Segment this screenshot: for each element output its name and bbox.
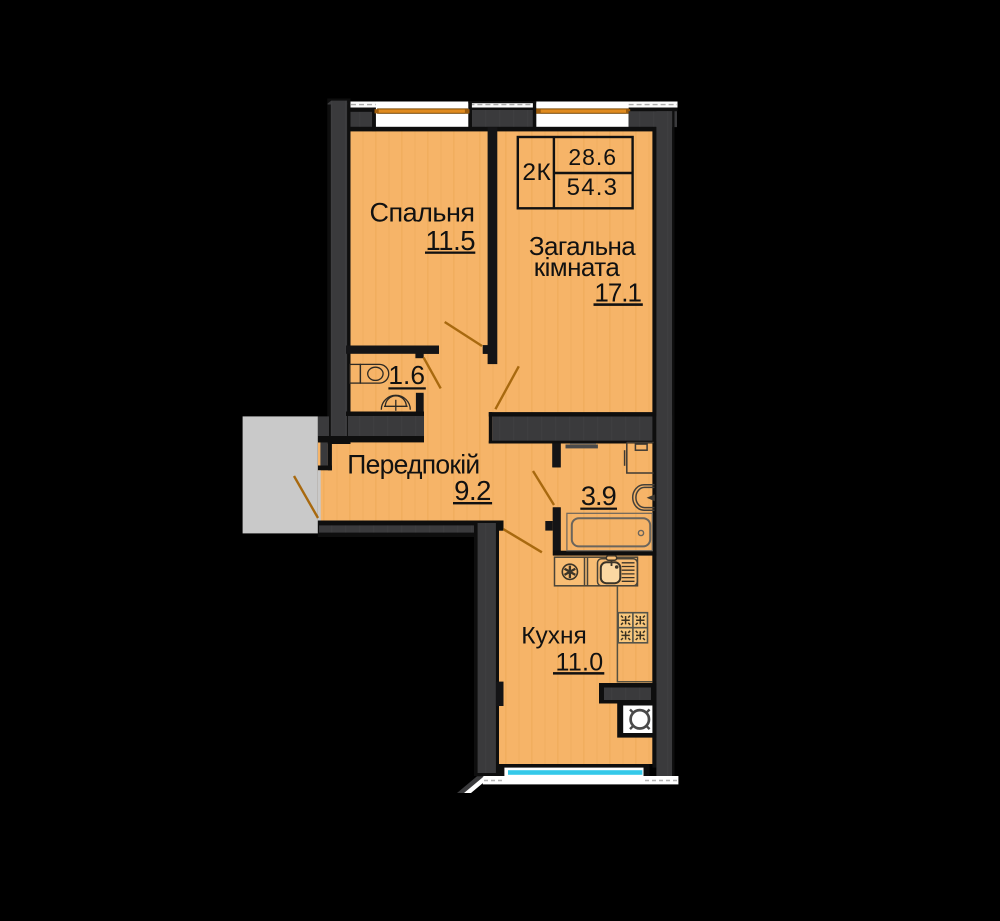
svg-text:2К: 2К: [522, 159, 551, 186]
svg-text:Кухня: Кухня: [521, 623, 587, 650]
svg-text:3.9: 3.9: [581, 480, 616, 511]
svg-text:1.6: 1.6: [388, 360, 425, 390]
svg-text:28.6: 28.6: [568, 144, 617, 170]
svg-text:17.1: 17.1: [594, 278, 641, 308]
svg-text:54.3: 54.3: [567, 174, 619, 201]
svg-text:9.2: 9.2: [454, 475, 491, 506]
svg-text:Спальня: Спальня: [370, 198, 475, 228]
svg-text:11.5: 11.5: [426, 225, 476, 256]
